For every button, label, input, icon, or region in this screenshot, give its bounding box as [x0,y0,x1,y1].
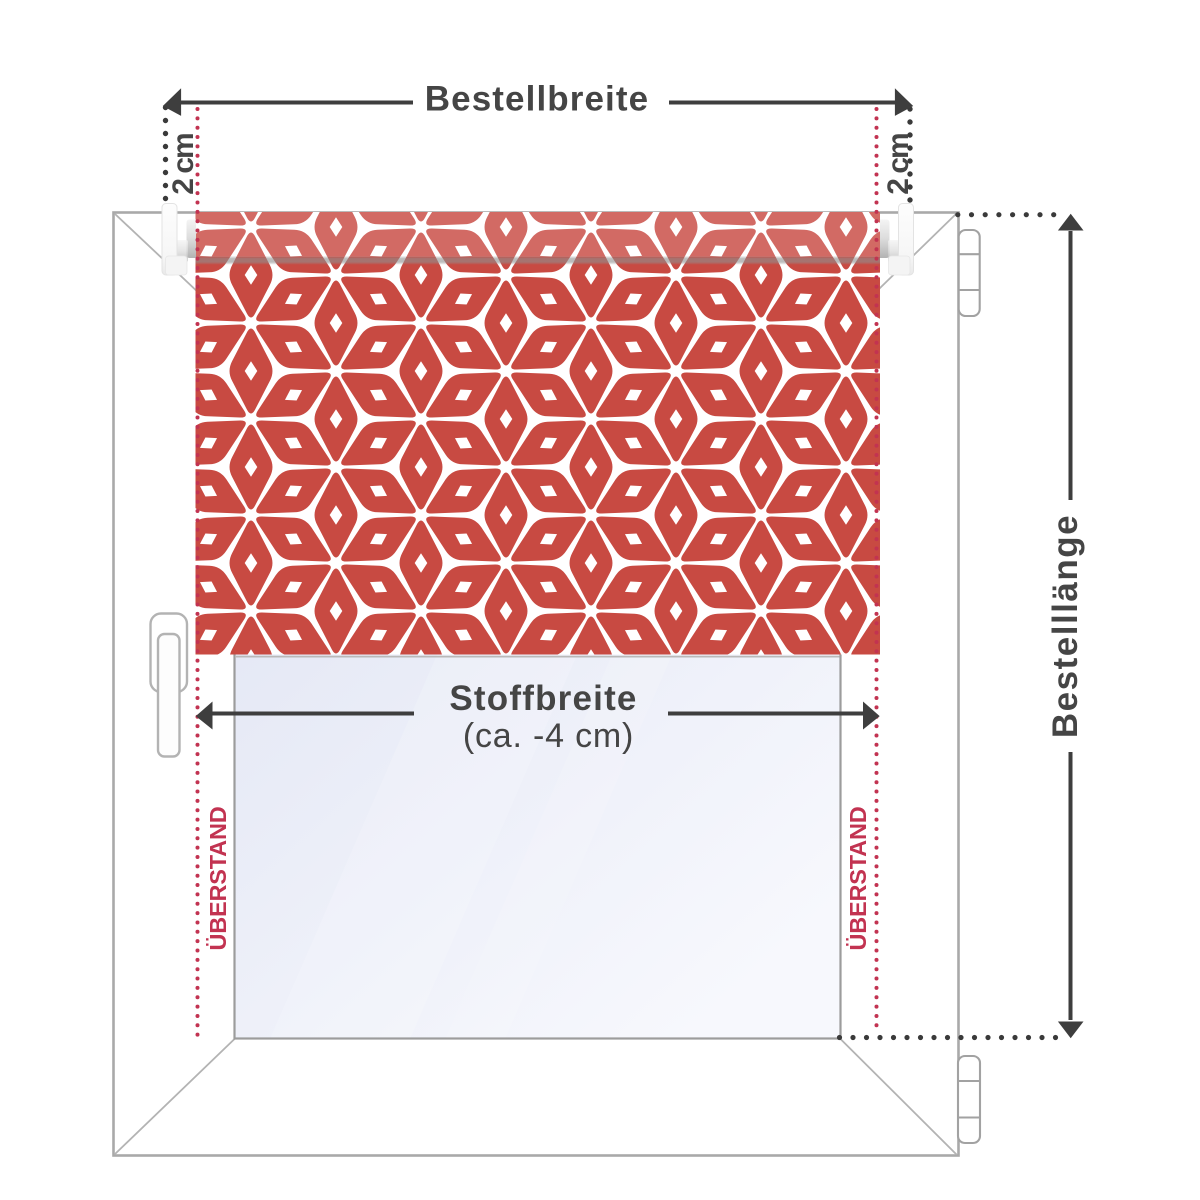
svg-text:ÜBERSTAND: ÜBERSTAND [205,807,231,951]
svg-text:2 cm: 2 cm [167,134,200,195]
svg-text:Bestellbreite: Bestellbreite [425,80,649,119]
svg-text:(ca. -4 cm): (ca. -4 cm) [463,717,634,755]
svg-text:ÜBERSTAND: ÜBERSTAND [845,807,871,951]
svg-text:Bestelllänge: Bestelllänge [1046,514,1085,738]
svg-text:2 cm: 2 cm [882,134,915,195]
svg-text:Stoffbreite: Stoffbreite [449,679,637,718]
